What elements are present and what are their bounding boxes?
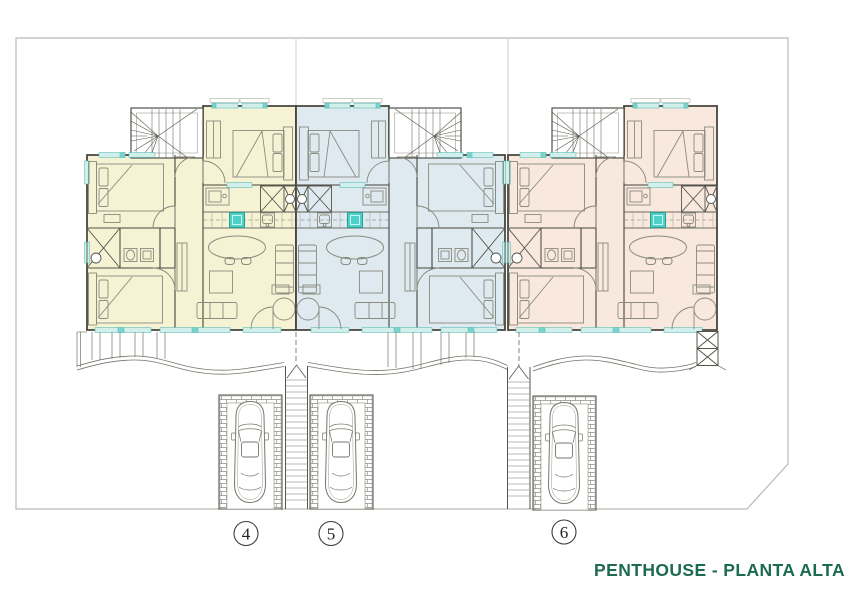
unit-badge-6-label: 6 (560, 523, 569, 542)
unit-badge-6: 6 (552, 520, 576, 544)
floor-plan-drawing: 4 5 6 (0, 0, 850, 614)
plan-title: PENTHOUSE - PLANTA ALTA (594, 560, 845, 581)
garage-4 (219, 395, 282, 509)
floor-plan-page: 4 5 6 PENTHOUSE - PLANTA ALTA (0, 0, 850, 614)
unit-badge-4: 4 (234, 522, 258, 546)
garage-5 (310, 395, 373, 509)
unit-badge-5-label: 5 (327, 525, 336, 544)
garage-6 (533, 396, 596, 510)
unit-badge-4-label: 4 (242, 525, 251, 544)
unit-badge-5: 5 (319, 522, 343, 546)
